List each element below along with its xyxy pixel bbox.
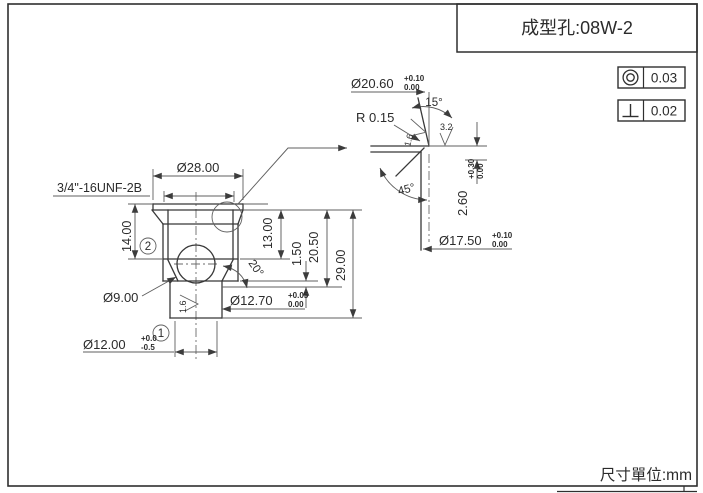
bore-dia-tol-lower: 0.00 <box>492 240 508 249</box>
bore-dia-dim: Ø17.50 <box>439 233 482 248</box>
roughness-icon-stem: 1.6 <box>178 295 198 313</box>
detail-extension-lines <box>429 146 487 160</box>
main-view: 2 1 1.6 3/4"-16UNF-2B Ø28.00 14.00 13.00… <box>53 148 362 362</box>
stem-dia-tol-upper: +0.05 <box>288 291 309 300</box>
ball-dia-dim: Ø9.00 <box>103 290 138 305</box>
perpendicularity-value: 0.02 <box>651 104 677 119</box>
roughness-taper-value: 1.6 <box>402 133 415 148</box>
perpendicularity-icon <box>623 104 639 117</box>
seat-depth-tol-upper: +0.30 <box>467 158 476 179</box>
concentricity-icon <box>623 70 638 85</box>
drawing-title: 成型孔:08W-2 <box>521 18 633 38</box>
units-note: 尺寸單位:mm <box>600 466 692 484</box>
thread-spec-label: 3/4"-16UNF-2B <box>57 181 142 195</box>
svg-text:2: 2 <box>145 241 151 253</box>
flange-height-dim: 14.00 <box>120 221 134 252</box>
engineering-drawing: 成型孔:08W-2 尺寸單位:mm 0.03 0.02 <box>0 0 703 493</box>
chamfer-angle-dim: 45° <box>397 182 417 198</box>
tip-dia-tol-upper: +0.0 <box>141 334 157 343</box>
detail-leader <box>238 148 347 204</box>
roughness-icon-seat: 3.2 <box>440 122 453 145</box>
roughness-stem-value: 1.6 <box>178 300 188 313</box>
drawing-sheet: 成型孔:08W-2 尺寸單位:mm 0.03 0.02 <box>0 0 703 493</box>
mouth-dia-tol-lower: 0.00 <box>404 83 420 92</box>
corner-radius-dim: R 0.15 <box>356 110 394 125</box>
mouth-dia-tol-upper: +0.10 <box>404 74 425 83</box>
seat-depth-dim: 2.60 <box>455 191 470 216</box>
svg-text:1: 1 <box>158 328 164 340</box>
step-dim: 1.50 <box>290 242 304 266</box>
mouth-dia-dim: Ø20.60 <box>351 76 394 91</box>
detail-view: 1.6 3.2 Ø20.60 +0.10 0.00 15° R 0.15 45°… <box>351 74 513 250</box>
stem-dia-tol-lower: 0.00 <box>288 300 304 309</box>
overall-height-dim: 29.00 <box>334 250 348 281</box>
tip-dia-tol-lower: -0.5 <box>141 343 155 352</box>
concentricity-value: 0.03 <box>651 71 677 86</box>
tolerance-frame-concentricity: 0.03 <box>618 67 685 88</box>
cone-angle-dim: 20° <box>246 258 266 279</box>
roughness-seat-value: 3.2 <box>440 122 453 132</box>
bore-dia-tol-upper: +0.10 <box>492 231 513 240</box>
title-block: 成型孔:08W-2 <box>457 4 697 52</box>
shoulder-dim: 20.50 <box>307 232 321 263</box>
bore-depth-dim: 13.00 <box>261 218 275 249</box>
tip-dia-dim: Ø12.00 <box>83 337 126 352</box>
stem-dia-dim: Ø12.70 <box>230 293 273 308</box>
balloon-2: 2 <box>140 238 156 254</box>
flange-dia-dim: Ø28.00 <box>177 160 220 175</box>
tolerance-frame-perpendicularity: 0.02 <box>618 100 685 121</box>
taper-angle-dim: 15° <box>425 97 442 109</box>
detail-reference-circle <box>212 202 242 232</box>
seat-depth-tol-lower: 0.00 <box>476 163 485 179</box>
